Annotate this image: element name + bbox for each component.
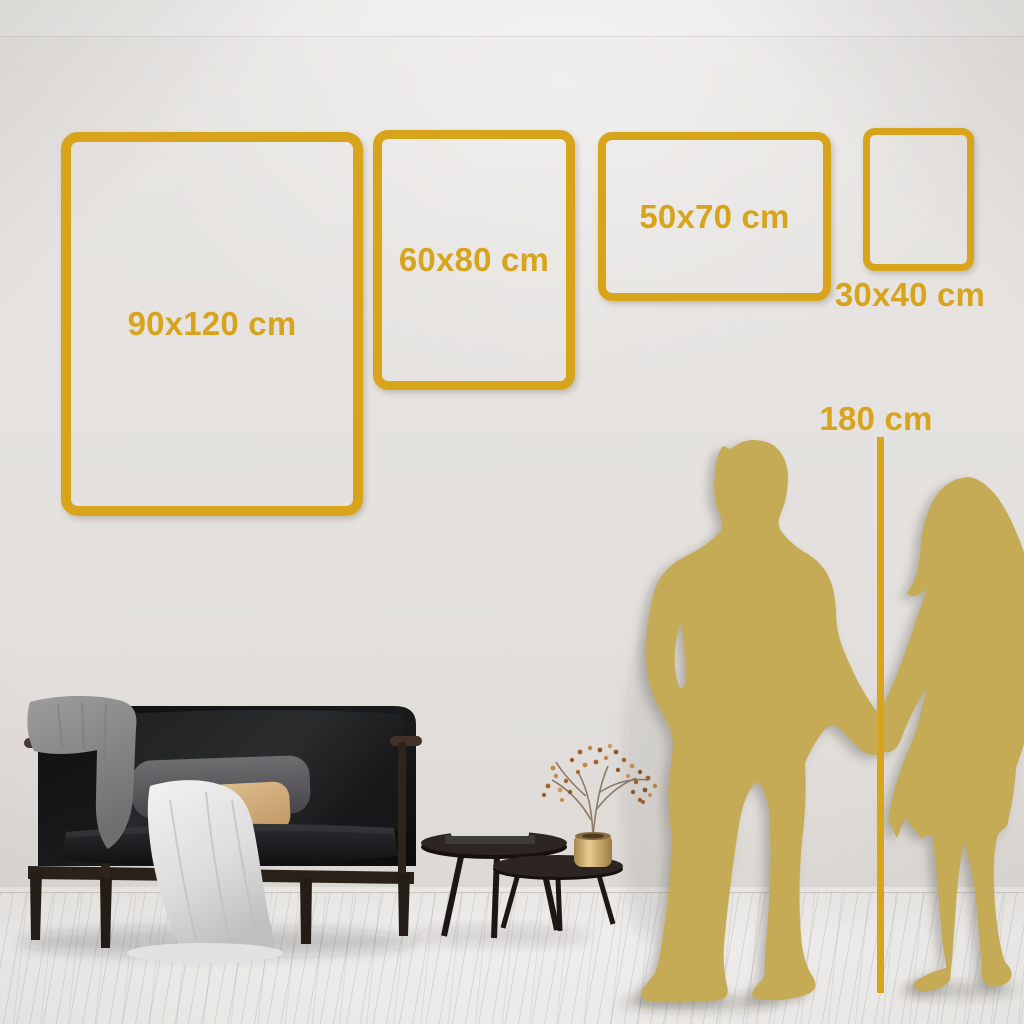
woman-silhouette: [873, 477, 1024, 991]
couple-silhouette: [0, 0, 1024, 1024]
height-reference-line: [877, 437, 884, 993]
poster-size-guide-scene: 90x120 cm 60x80 cm 50x70 cm 30x40 cm 180…: [0, 0, 1024, 1024]
man-silhouette: [641, 440, 888, 1002]
height-reference-label: 180 cm: [776, 400, 976, 438]
